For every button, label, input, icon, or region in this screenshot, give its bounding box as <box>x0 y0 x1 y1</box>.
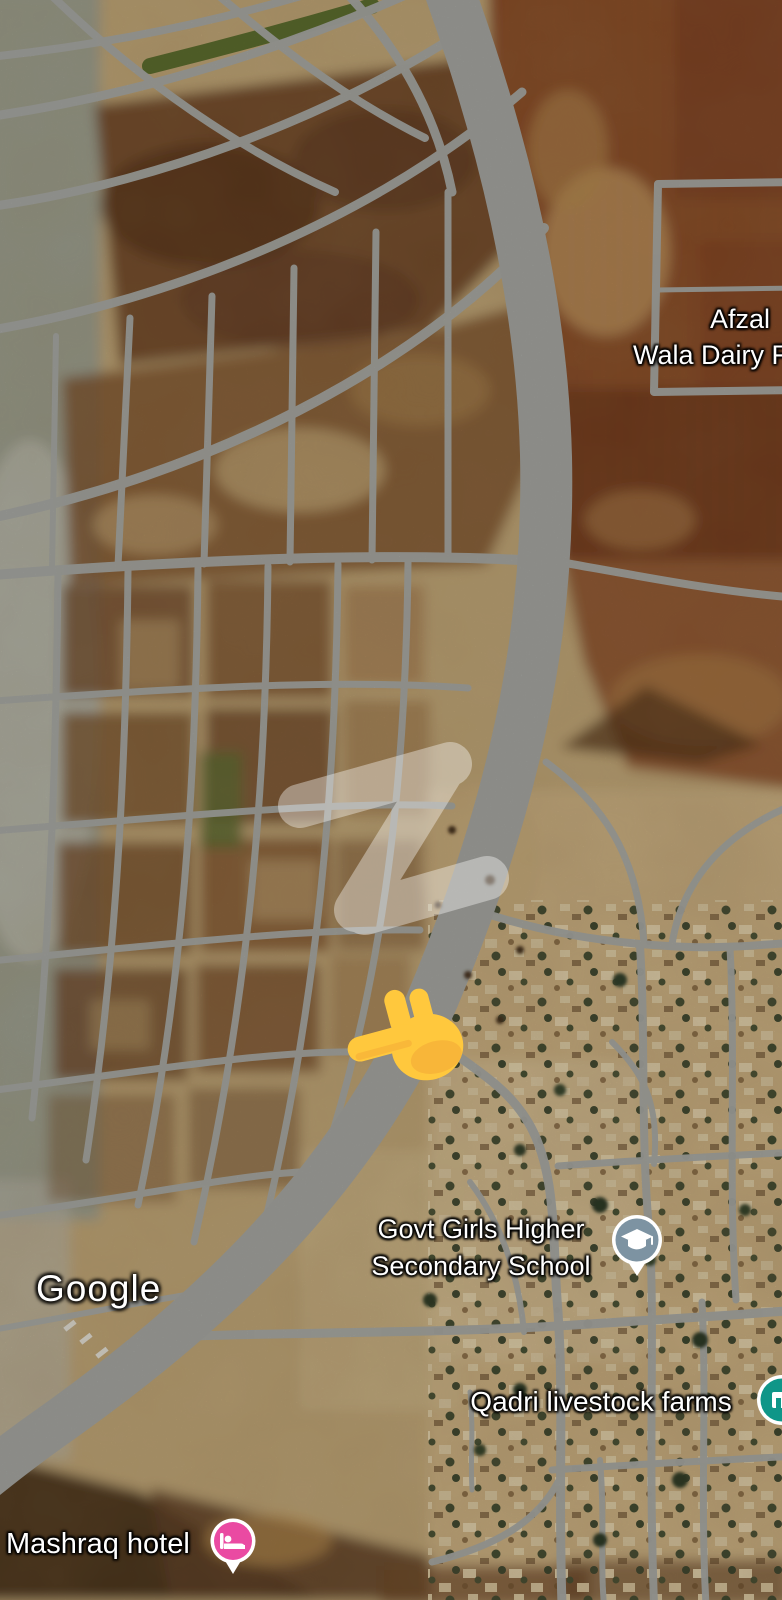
satellite-grain <box>0 0 782 1600</box>
storefront-glyph <box>772 1392 782 1408</box>
poi-label-line2: Secondary School <box>321 1248 641 1285</box>
pointing-left-hand-icon <box>346 988 470 1100</box>
livestock-pin-icon[interactable] <box>752 1372 782 1432</box>
poi-label-line1: Govt Girls Higher <box>321 1211 641 1248</box>
poi-label-dairy-farm[interactable]: Afzal Wala Dairy F <box>633 301 782 373</box>
tree-dots <box>423 826 751 1547</box>
poi-label-line2: Wala Dairy F <box>633 337 782 373</box>
satellite-map[interactable]: Afzal Wala Dairy F Govt Girls Higher Sec… <box>0 0 782 1600</box>
green-median-strip <box>150 6 372 66</box>
satellite-terrain <box>0 0 782 1600</box>
poi-label-livestock[interactable]: Qadri livestock farms <box>450 1386 752 1418</box>
hotel-pin-icon[interactable] <box>208 1516 258 1576</box>
poi-label-hotel[interactable]: Mashraq hotel <box>6 1528 190 1561</box>
poi-label-line1: Afzal <box>633 301 782 337</box>
road-network <box>0 0 782 1600</box>
terrain-mottle <box>0 0 782 1600</box>
google-logo[interactable]: Google <box>36 1268 161 1310</box>
z-watermark <box>0 0 782 1600</box>
poi-label-school[interactable]: Govt Girls Higher Secondary School <box>321 1211 641 1285</box>
terrain-patches <box>0 0 782 1600</box>
